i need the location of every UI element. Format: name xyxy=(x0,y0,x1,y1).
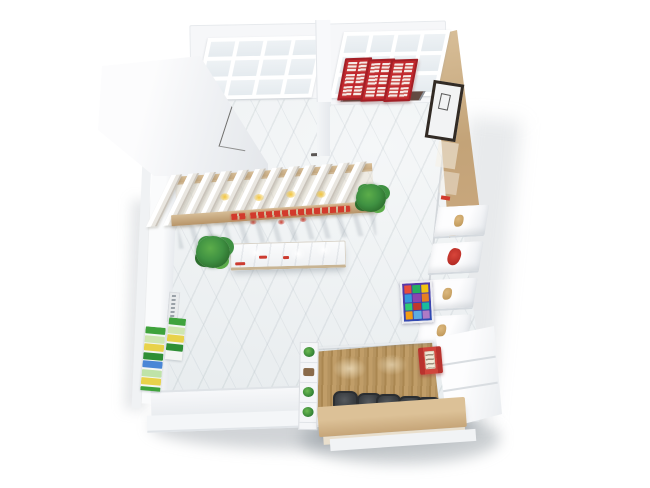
counter-red-item xyxy=(259,256,267,259)
display-shelf-bay xyxy=(427,241,483,275)
wall-groove xyxy=(440,356,496,367)
shelf-cell xyxy=(300,343,317,363)
kiosk-tile xyxy=(421,284,429,292)
red-signage-text xyxy=(231,213,245,220)
poster-block xyxy=(142,360,163,369)
kiosk-poster xyxy=(400,280,434,324)
door-slat xyxy=(342,86,352,96)
window-pane xyxy=(416,55,441,72)
kiosk-tile xyxy=(405,294,413,302)
window-divider-pillar xyxy=(315,20,331,102)
counter-red-item xyxy=(235,262,245,265)
kiosk-tile xyxy=(404,285,412,293)
window-pane xyxy=(421,34,446,51)
red-shelf-item xyxy=(445,247,464,266)
door-slat xyxy=(347,62,357,72)
door-slat xyxy=(370,63,380,73)
poster-block xyxy=(142,369,163,378)
kiosk-tile xyxy=(421,293,429,301)
window-pane xyxy=(236,41,263,57)
red-accent xyxy=(299,217,306,222)
window-pane xyxy=(369,35,394,52)
door-slat xyxy=(401,75,411,85)
window-pane xyxy=(284,78,311,94)
tan-shelf-item xyxy=(436,324,447,336)
window-pane xyxy=(288,59,315,75)
poster-block xyxy=(167,334,185,343)
window-pane xyxy=(264,40,291,56)
poster-block xyxy=(143,352,164,361)
door-slat xyxy=(398,87,408,97)
door-slat xyxy=(365,87,375,97)
door-slat xyxy=(388,87,398,97)
kiosk-tile xyxy=(405,303,413,311)
wall-poster xyxy=(438,171,459,196)
poster-block xyxy=(168,326,186,335)
red-entry-panels xyxy=(345,56,418,100)
poster-block xyxy=(166,343,184,352)
small-plant xyxy=(303,387,314,397)
tan-shelf-item xyxy=(442,288,453,300)
door-slat xyxy=(390,75,400,85)
kiosk-tile xyxy=(414,311,422,319)
storage-box xyxy=(303,368,314,376)
window-pane xyxy=(260,60,287,76)
wall-groove xyxy=(442,382,498,393)
kiosk-tile xyxy=(413,294,421,302)
window-pane xyxy=(256,79,283,95)
window-pane xyxy=(208,41,235,57)
window-pane xyxy=(228,79,255,95)
red-accent xyxy=(278,219,285,224)
small-plant xyxy=(304,347,315,357)
counter-light xyxy=(319,246,329,254)
shelf-cell xyxy=(300,363,317,383)
door-slat xyxy=(403,63,413,73)
door-slat xyxy=(393,63,403,73)
kiosk-tile xyxy=(422,311,430,319)
counter-light xyxy=(293,250,303,258)
poster-block xyxy=(145,326,166,335)
kiosk-tile xyxy=(406,311,414,319)
window-pane xyxy=(232,60,259,76)
poster-block xyxy=(144,335,165,344)
potted-plant xyxy=(356,184,386,212)
kiosk-tile xyxy=(412,285,420,293)
potted-plant xyxy=(196,236,230,268)
window-pane xyxy=(344,35,369,52)
interior-render-canvas xyxy=(0,0,650,488)
plant-divider-shelf xyxy=(298,342,319,430)
door-slat xyxy=(367,75,377,85)
wall-poster xyxy=(435,141,459,170)
poster-block xyxy=(141,377,162,386)
shelf-cell xyxy=(300,383,317,403)
counter-red-item xyxy=(283,256,289,259)
kiosk-tile xyxy=(413,302,421,310)
tan-shelf-item xyxy=(453,215,464,227)
red-coffee-machine xyxy=(418,346,443,375)
partition-wall xyxy=(317,98,330,156)
display-counter xyxy=(230,240,347,270)
poster-block xyxy=(169,317,187,326)
door-slat xyxy=(344,74,354,84)
kiosk-tile xyxy=(422,302,430,310)
shelf-cell xyxy=(299,403,316,423)
window-pane xyxy=(395,34,420,51)
small-plant xyxy=(302,407,313,417)
poster-block xyxy=(144,343,165,352)
display-shelf-bay xyxy=(433,204,489,238)
